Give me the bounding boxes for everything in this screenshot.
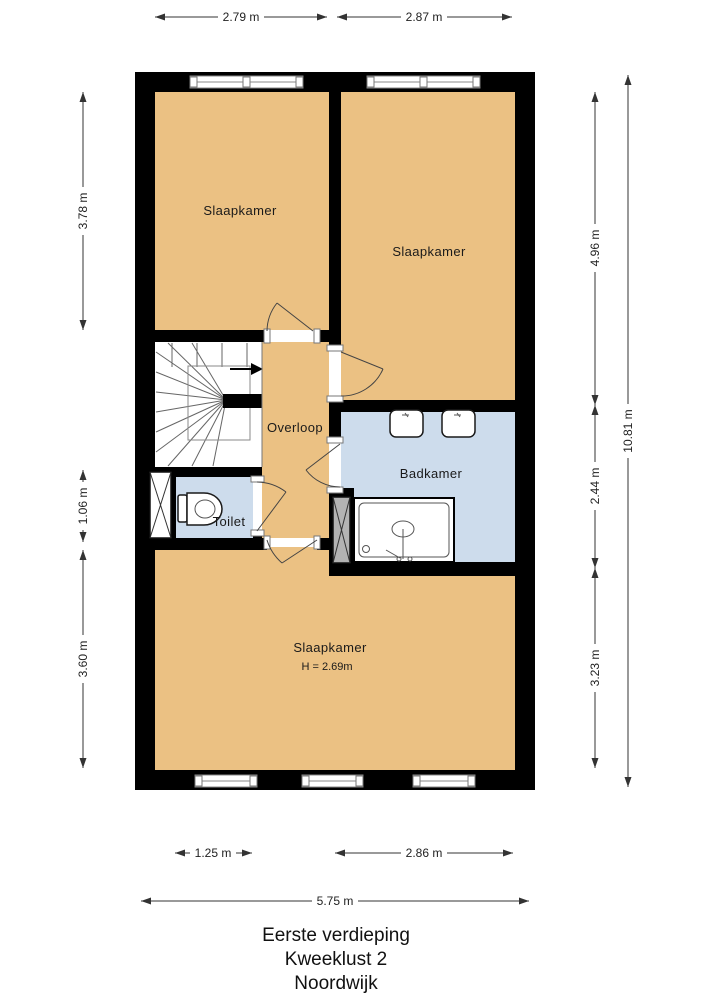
svg-text:2.79 m: 2.79 m	[223, 10, 260, 24]
stair-center-wall	[223, 394, 262, 408]
bathroom-sink-right	[442, 410, 475, 437]
window-top-left	[190, 76, 303, 88]
dim-left-3: 3.60 m	[75, 550, 91, 768]
dim-top-2: 2.87 m	[337, 9, 512, 25]
dim-right-2: 2.44 m	[587, 405, 603, 568]
svg-text:1.25 m: 1.25 m	[195, 846, 232, 860]
svg-text:2.86 m: 2.86 m	[406, 846, 443, 860]
label-bedroom-top-right: Slaapkamer	[392, 244, 466, 259]
label-landing: Overloop	[267, 420, 323, 435]
svg-text:4.96 m: 4.96 m	[588, 230, 602, 267]
shower	[354, 498, 454, 562]
svg-text:3.60 m: 3.60 m	[76, 641, 90, 678]
label-bedroom-bottom: Slaapkamer	[293, 640, 367, 655]
dim-bottom-total: 5.75 m	[141, 893, 529, 909]
title-address: Kweeklust 2	[285, 949, 387, 970]
dim-bottom-2: 2.86 m	[335, 845, 513, 861]
dim-left-2: 1.06 m	[75, 470, 91, 542]
dim-bottom-1: 1.25 m	[175, 845, 252, 861]
bathroom-sink-left	[390, 410, 423, 437]
room-bedroom-bottom-right-part	[329, 576, 515, 770]
shaft-middle	[333, 497, 350, 563]
label-toilet: Toilet	[213, 514, 246, 529]
window-top-right	[367, 76, 480, 88]
title-city: Noordwijk	[294, 973, 378, 994]
svg-text:2.87 m: 2.87 m	[406, 10, 443, 24]
label-bathroom: Badkamer	[400, 466, 463, 481]
dim-left-1: 3.78 m	[75, 92, 91, 330]
label-bedroom-top-left: Slaapkamer	[203, 203, 277, 218]
svg-text:10.81 m: 10.81 m	[621, 409, 635, 452]
svg-text:2.44 m: 2.44 m	[588, 468, 602, 505]
window-bottom-2	[302, 775, 363, 787]
room-landing	[262, 342, 329, 538]
window-bottom-3	[413, 775, 475, 787]
dim-right-total: 10.81 m	[620, 75, 636, 787]
room-bedroom-bottom-left-part	[155, 550, 329, 770]
svg-text:1.06 m: 1.06 m	[76, 488, 90, 525]
title-block: Eerste verdieping Kweeklust 2 Noordwijk	[262, 925, 410, 994]
label-bedroom-bottom-height: H = 2.69m	[301, 661, 352, 673]
svg-text:3.23 m: 3.23 m	[588, 650, 602, 687]
dim-right-3: 3.23 m	[587, 568, 603, 768]
title-floor: Eerste verdieping	[262, 925, 410, 946]
svg-text:3.78 m: 3.78 m	[76, 193, 90, 230]
shaft-left	[150, 472, 171, 538]
floorplan-page: Slaapkamer Slaapkamer Overloop Badkamer …	[0, 0, 707, 1000]
window-bottom-1	[195, 775, 257, 787]
dim-right-1: 4.96 m	[587, 92, 603, 405]
svg-text:5.75 m: 5.75 m	[317, 894, 354, 908]
dim-top-1: 2.79 m	[155, 9, 327, 25]
floorplan-drawing: Slaapkamer Slaapkamer Overloop Badkamer …	[0, 0, 707, 1000]
